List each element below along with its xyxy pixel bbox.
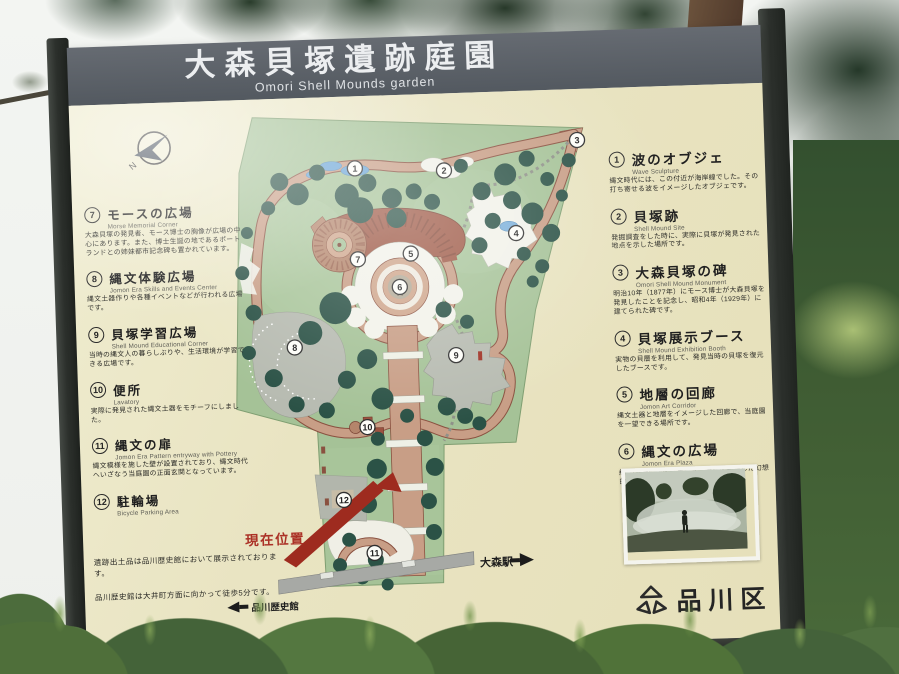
svg-text:5: 5: [408, 249, 413, 259]
map-marker-11: 11: [367, 545, 382, 560]
current-location-label: 現在位置: [245, 530, 305, 548]
map-marker-12: 12: [336, 492, 351, 507]
legend-number: 3: [612, 265, 629, 282]
sign-board: 大森貝塚遺跡庭園 Omori Shell Mounds garden N: [67, 25, 781, 660]
svg-text:12: 12: [339, 495, 349, 505]
svg-text:10: 10: [362, 422, 372, 432]
legend-title: 貝塚展示ブース: [637, 324, 745, 348]
svg-text:N: N: [127, 160, 138, 172]
legend-item: 2貝塚跡Shell Mound Site発掘調査をした時に、実際に貝塚が発見され…: [610, 202, 763, 253]
map-marker-6: 6: [392, 279, 407, 294]
note-exhibits: 遺跡出土品は品川歴史館において展示されております。: [94, 551, 287, 580]
svg-text:大森駅: 大森駅: [480, 554, 513, 569]
svg-text:1: 1: [352, 164, 357, 174]
legend-number: 5: [616, 387, 633, 404]
legend-description: 明治10年（1877年）にモース博士が大森貝塚を発見したことを記念し、昭和4年（…: [613, 286, 766, 318]
legend-number: 8: [86, 271, 103, 288]
svg-text:2: 2: [441, 166, 446, 176]
svg-text:6: 6: [397, 282, 402, 292]
ward-signature: 品川区: [634, 579, 773, 620]
legend-item: 4貝塚展示ブースShell Mound Exhibition Booth実物の貝…: [614, 324, 767, 375]
map-marker-2: 2: [436, 163, 451, 178]
legend-description: 当時の縄文人の暮らしぶりや、生活環境が学習できる広場です。: [89, 347, 251, 370]
legend-title: 地層の回廊: [639, 382, 717, 405]
legend-item: 8縄文体験広場Jomon Era Skills and Events Cente…: [86, 264, 249, 314]
map-marker-4: 4: [508, 225, 523, 240]
mist-plaza-photo: [621, 464, 760, 564]
legend-description: 縄文土器作りや各種イベントなどが行われる広場です。: [87, 291, 249, 314]
legend-number: 1: [608, 151, 625, 168]
legend-title: 貝塚跡: [633, 204, 680, 226]
legend-description: 縄文時代には、この付近が海岸線でした。その打ち寄せる波をイメージしたオブジェです…: [609, 173, 762, 196]
photo-scene: 大森貝塚遺跡庭園 Omori Shell Mounds garden N: [0, 0, 899, 674]
compass-icon: N: [121, 118, 187, 182]
map-marker-7: 7: [350, 252, 365, 267]
station-direction: 大森駅: [480, 553, 534, 570]
ward-name: 品川区: [676, 579, 773, 618]
legend-title: 便所: [113, 379, 143, 399]
map-marker-5: 5: [403, 246, 418, 261]
legend-number: 7: [84, 206, 101, 223]
shinagawa-ward-logo-icon: [634, 584, 669, 617]
legend-number: 10: [90, 382, 107, 399]
map-marker-3: 3: [569, 132, 584, 147]
board-body: N: [69, 83, 781, 660]
legend-number: 4: [614, 330, 631, 347]
notes-block: 遺跡出土品は品川歴史館において展示されております。 品川歴史館は大井町方面に向か…: [94, 551, 288, 616]
legend-item: 5地層の回廊Jomon Art Corridor縄文土器と地層をイメージした回廊…: [616, 380, 769, 431]
legend-title: 波のオブジェ: [631, 146, 725, 169]
map-marker-8: 8: [287, 340, 302, 355]
legend-number: 6: [618, 443, 635, 460]
legend-title: 縄文の広場: [641, 439, 719, 462]
svg-text:11: 11: [370, 548, 380, 558]
legend-title: モースの広場: [107, 202, 194, 224]
map-marker-1: 1: [347, 161, 362, 176]
svg-text:8: 8: [292, 343, 297, 353]
legend-description: 実物の貝層を利用して、発見当時の貝塚を復元したブースです。: [615, 352, 768, 375]
svg-text:4: 4: [513, 228, 518, 238]
bush-left: [0, 560, 110, 674]
legend-item: 1波のオブジェWave Sculpture縄文時代には、この付近が海岸線でした。…: [608, 145, 761, 196]
information-sign: 大森貝塚遺跡庭園 Omori Shell Mounds garden N: [46, 16, 812, 674]
note-walk: 品川歴史館は大井町方面に向かって徒歩5分です。: [95, 586, 287, 604]
legend-description: 発掘調査をした時に、実際に貝塚が発見された地点を示した場所です。: [611, 230, 764, 253]
legend-description: 縄文土器と地層をイメージした回廊で、当庭園を一望できる場所です。: [617, 408, 770, 431]
legend-item: 9貝塚学習広場Shell Mound Educational Corner当時の…: [88, 320, 251, 370]
svg-text:7: 7: [355, 255, 360, 265]
legend-left-column: 7モースの広場Morse Memorial Corner大森貝塚の発見者、モース…: [84, 200, 257, 529]
legend-title: 駐輪場: [116, 490, 160, 510]
legend-number: 9: [88, 326, 105, 343]
legend-number: 12: [94, 493, 111, 510]
legend-description: 大森貝塚の発見者、モース博士の胸像が広場の中心にあります。また、博士生誕の地であ…: [85, 227, 248, 259]
legend-item: 7モースの広場Morse Memorial Corner大森貝塚の発見者、モース…: [84, 200, 248, 259]
legend-item: 10便所Lavatory実際に発見された縄文土器をモチーフにしました。: [90, 376, 253, 426]
legend-number: 11: [92, 438, 109, 455]
legend-description: 縄文模様を施した壁が設置されており、縄文時代へいざなう当庭園の正面玄関となってい…: [93, 458, 255, 481]
legend-title: 縄文の扉: [115, 434, 174, 455]
legend-number: 2: [610, 208, 627, 225]
legend-item: 3大森貝塚の碑Omori Shell Mound Monument明治10年（1…: [612, 258, 766, 317]
legend-item: 12駐輪場Bicycle Parking Area: [93, 487, 256, 518]
map-marker-10: 10: [360, 419, 375, 434]
svg-text:3: 3: [574, 135, 579, 145]
legend-right-column: 1波のオブジェWave Sculpture縄文時代には、この付近が海岸線でした。…: [608, 145, 771, 499]
svg-text:9: 9: [453, 350, 458, 360]
map-marker-9: 9: [448, 347, 463, 362]
legend-item: 11縄文の扉Jomon Era Pattern entryway with Po…: [92, 431, 255, 481]
